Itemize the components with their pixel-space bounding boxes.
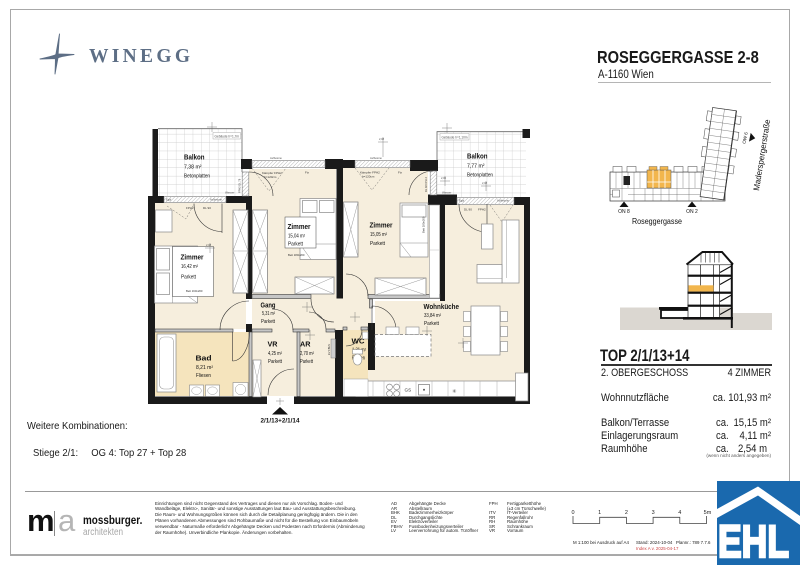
svg-text:✳: ✳	[452, 388, 457, 395]
svg-text:FPH2 DL 78: FPH2 DL 78	[238, 178, 242, 193]
svg-text:0: 0	[571, 510, 574, 516]
svg-text:ON 2: ON 2	[686, 209, 698, 215]
svg-text:2,06: 2,06	[441, 176, 447, 180]
svg-text:Parkett: Parkett	[268, 359, 283, 365]
svg-text:15,05 m²: 15,05 m²	[370, 232, 387, 238]
svg-text:DL 92 FPH 2: DL 92 FPH 2	[424, 177, 428, 192]
svg-text:1: 1	[598, 510, 601, 516]
svg-text:2: 2	[625, 510, 628, 516]
svg-text:ON 8: ON 8	[618, 209, 630, 215]
svg-text:Zimmer: Zimmer	[288, 222, 311, 231]
svg-text:4,25 m²: 4,25 m²	[268, 351, 282, 357]
svg-text:5m: 5m	[704, 510, 712, 516]
svg-text:33,84 m²: 33,84 m²	[424, 313, 441, 319]
svg-text:Wohnküche: Wohnküche	[424, 302, 460, 311]
svg-text:Egal: Egal	[459, 199, 465, 203]
svg-text:15,04 m²: 15,04 m²	[288, 234, 305, 240]
svg-text:Fliesen: Fliesen	[196, 373, 211, 379]
svg-text:FPH2: FPH2	[478, 208, 486, 212]
svg-text:Parkett: Parkett	[370, 241, 386, 247]
svg-text:VR: VR	[268, 340, 279, 349]
svg-text:Betonplatten: Betonplatten	[184, 174, 210, 180]
svg-text:Zimmer: Zimmer	[181, 253, 204, 262]
svg-text:Gang: Gang	[261, 301, 276, 310]
svg-text:Maderspergerstraße: Maderspergerstraße	[751, 118, 772, 191]
svg-text:Aufbetone: Aufbetone	[210, 198, 222, 202]
svg-text:Fix: Fix	[398, 171, 402, 175]
svg-text:Zimmer: Zimmer	[370, 221, 393, 230]
svg-text:8,21 m²: 8,21 m²	[196, 365, 213, 371]
svg-text:Gebäude h=1,10m: Gebäude h=1,10m	[442, 136, 468, 140]
svg-text:Fix: Fix	[305, 171, 309, 175]
svg-text:2,08: 2,08	[482, 181, 488, 185]
svg-text:Parkett: Parkett	[300, 359, 313, 365]
svg-text:Bett 180x200: Bett 180x200	[288, 253, 305, 257]
svg-text:Gebäude h=1,7m: Gebäude h=1,7m	[215, 135, 240, 139]
svg-text:Bad: Bad	[196, 354, 212, 363]
svg-text:Balkon: Balkon	[184, 153, 205, 162]
svg-text:2,70 m²: 2,70 m²	[300, 351, 314, 357]
svg-text:Egal: Egal	[166, 198, 172, 202]
svg-text:2/1/13+2/1/14: 2/1/13+2/1/14	[261, 418, 301, 425]
svg-text:DL 90: DL 90	[464, 208, 472, 212]
svg-text:DL 90: DL 90	[203, 206, 211, 210]
svg-text:h=120cm: h=120cm	[264, 175, 277, 179]
svg-text:Parkett: Parkett	[288, 242, 304, 248]
svg-text:OW 6: OW 6	[742, 131, 749, 144]
svg-text:Aufbetone: Aufbetone	[270, 156, 282, 160]
svg-text:Aufbetone: Aufbetone	[497, 199, 509, 203]
svg-text:Bett 160x200: Bett 160x200	[186, 289, 203, 293]
svg-text:AR: AR	[300, 340, 311, 349]
svg-text:7,38 m²: 7,38 m²	[184, 165, 202, 171]
svg-text:7,77 m²: 7,77 m²	[467, 164, 485, 170]
svg-text:Bett 180x200: Bett 180x200	[422, 216, 426, 233]
svg-text:2,08: 2,08	[206, 243, 212, 247]
svg-text:16,42 m²: 16,42 m²	[181, 264, 198, 270]
svg-text:GS: GS	[405, 388, 412, 393]
svg-text:Parkett: Parkett	[261, 319, 276, 325]
svg-text:5,31 m²: 5,31 m²	[262, 311, 275, 317]
svg-text:EV FBHV: EV FBHV	[327, 344, 331, 355]
svg-text:Balkon: Balkon	[467, 152, 488, 161]
svg-text:4: 4	[678, 510, 681, 516]
svg-text:Parkett: Parkett	[424, 321, 440, 327]
svg-text:h=120cm: h=120cm	[362, 175, 375, 179]
svg-text:Parkett: Parkett	[181, 275, 197, 281]
svg-text:Roseggergasse: Roseggergasse	[632, 217, 682, 226]
svg-text:Wasser: Wasser	[442, 191, 451, 195]
svg-text:Wasser: Wasser	[225, 191, 234, 195]
svg-text:Betonplatten: Betonplatten	[467, 173, 493, 179]
svg-text:2,08: 2,08	[379, 137, 385, 141]
svg-text:Aufbetone: Aufbetone	[370, 156, 382, 160]
svg-text:3: 3	[652, 510, 655, 516]
